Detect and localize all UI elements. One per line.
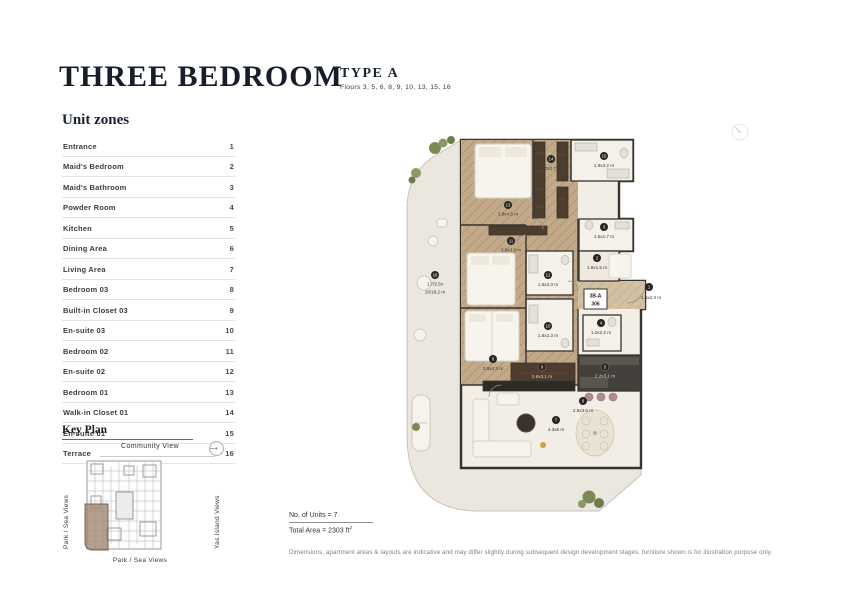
zone-label: Entrance — [63, 142, 97, 151]
list-item: Powder Room4 — [62, 198, 235, 219]
svg-text:13: 13 — [506, 203, 511, 208]
key-plan-unit-highlight — [85, 504, 108, 550]
floor-plan: 3B-A 306 1 1.6x2.3 m 2 1.9x1.5 m 3 1.5x1… — [393, 123, 693, 518]
svg-text:1.5x1.7 m: 1.5x1.7 m — [594, 234, 614, 239]
zone-label: Bedroom 02 — [63, 347, 108, 356]
zone-label: Maid's Bathroom — [63, 183, 127, 192]
list-item: En-suite 0212 — [62, 362, 235, 383]
svg-text:3.5x4.3 m: 3.5x4.3 m — [483, 366, 503, 371]
svg-text:10/18.2 m: 10/18.2 m — [425, 290, 446, 295]
list-item: Bedroom 038 — [62, 280, 235, 301]
zone-number: 15 — [225, 429, 234, 438]
svg-text:11: 11 — [509, 239, 514, 244]
zone-label: Kitchen — [63, 224, 92, 233]
area-superscript: 2 — [350, 525, 353, 530]
units-count: No. of Units = 7 — [289, 512, 373, 519]
zone-number: 7 — [230, 265, 234, 274]
svg-text:1.9x1.5 m: 1.9x1.5 m — [587, 265, 607, 270]
zone-number: 3 — [230, 183, 234, 192]
list-item: En-suite 0310 — [62, 321, 235, 342]
zone-number: 5 — [230, 224, 234, 233]
svg-text:16: 16 — [433, 273, 438, 278]
key-plan-heading: Key Plan — [62, 424, 107, 436]
unit-code-box: 3B-A 306 — [584, 289, 607, 309]
unit-number: 306 — [591, 302, 600, 308]
zone-number: 12 — [225, 367, 234, 376]
zone-label: Terrace — [63, 449, 91, 458]
north-compass-icon — [729, 121, 751, 143]
key-plan-right-label: Yas Island Views — [214, 495, 221, 549]
zone-number: 6 — [230, 244, 234, 253]
key-plan-left-label: Park / Sea Views — [63, 495, 70, 549]
divider — [289, 522, 373, 523]
zone-label: Dining Area — [63, 244, 107, 253]
zone-number: 2 — [230, 162, 234, 171]
zone-label: Living Area — [63, 265, 106, 274]
list-item: Living Area7 — [62, 259, 235, 280]
zone-number: 16 — [225, 449, 234, 458]
unit-code: 3B-A — [590, 294, 602, 300]
list-item: Built-in Closet 039 — [62, 300, 235, 321]
svg-text:1.9x3.2 m: 1.9x3.2 m — [594, 163, 614, 168]
divider — [100, 456, 215, 457]
svg-text:3.9x4.5 m: 3.9x4.5 m — [498, 212, 518, 217]
svg-text:1.2x2.2 m: 1.2x2.2 m — [591, 330, 611, 335]
list-item: Maid's Bathroom3 — [62, 177, 235, 198]
svg-text:15: 15 — [602, 154, 607, 159]
zone-number: 4 — [230, 203, 234, 212]
key-plan-tower-map — [82, 458, 168, 556]
key-plan-bottom-label: Park / Sea Views — [80, 557, 200, 564]
divider — [62, 439, 193, 440]
svg-text:3.5x3.9 m: 3.5x3.9 m — [501, 248, 521, 253]
total-area: Total Area = 2303 ft2 — [289, 525, 373, 534]
footer-stats: No. of Units = 7 Total Area = 2303 ft2 — [289, 512, 373, 534]
zone-label: Powder Room — [63, 203, 116, 212]
zone-number: 13 — [225, 388, 234, 397]
zone-number: 10 — [225, 326, 234, 335]
svg-text:1.7/2.5x: 1.7/2.5x — [427, 282, 444, 287]
zone-label: Bedroom 01 — [63, 388, 108, 397]
list-item: Dining Area6 — [62, 239, 235, 260]
svg-text:1.6x2.3 m: 1.6x2.3 m — [641, 295, 661, 300]
zone-label: Walk-in Closet 01 — [63, 408, 128, 417]
svg-text:4.3x6 m: 4.3x6 m — [548, 427, 565, 432]
svg-text:2.2x3.1 m: 2.2x3.1 m — [595, 374, 615, 379]
list-item: Bedroom 0113 — [62, 382, 235, 403]
disclaimer-text: Dimensions, apartment areas & layouts ar… — [289, 549, 794, 556]
unit-zones-heading: Unit zones — [62, 112, 129, 129]
key-plan-compass-icon — [208, 440, 225, 457]
svg-text:1.6x2.3 m: 1.6x2.3 m — [538, 333, 558, 338]
list-item: Walk-in Closet 0114 — [62, 403, 235, 424]
zone-label: Bedroom 03 — [63, 285, 108, 294]
zone-label: En-suite 03 — [63, 326, 105, 335]
unit-type-label: TYPE A — [340, 66, 399, 82]
page-title: THREE BEDROOM — [59, 60, 343, 94]
svg-text:1.7x2.7 m: 1.7x2.7 m — [541, 166, 561, 171]
zone-number: 14 — [225, 408, 234, 417]
list-item: Kitchen5 — [62, 218, 235, 239]
list-item: Maid's Bedroom2 — [62, 157, 235, 178]
zone-label: Built-in Closet 03 — [63, 306, 128, 315]
unit-zones-list: Entrance1 Maid's Bedroom2 Maid's Bathroo… — [62, 136, 235, 464]
key-plan-top-label: Community View — [80, 443, 220, 450]
svg-text:10: 10 — [546, 324, 551, 329]
list-item: Entrance1 — [62, 136, 235, 157]
zone-number: 8 — [230, 285, 234, 294]
zone-number: 11 — [226, 347, 234, 356]
list-item: Bedroom 0211 — [62, 341, 235, 362]
svg-text:2.5x3.5 m: 2.5x3.5 m — [573, 408, 593, 413]
zone-number: 9 — [230, 306, 234, 315]
zone-label: En-suite 02 — [63, 367, 105, 376]
svg-text:1.6x2.3 m: 1.6x2.3 m — [538, 282, 558, 287]
dining-table — [576, 410, 614, 456]
svg-text:14: 14 — [549, 157, 554, 162]
svg-text:12: 12 — [546, 273, 551, 278]
zone-number: 1 — [230, 142, 234, 151]
floors-list: Floors 3, 5, 6, 8, 9, 10, 13, 15, 16 — [340, 84, 451, 91]
brochure-page: THREE BEDROOM TYPE A Floors 3, 5, 6, 8, … — [0, 0, 848, 600]
zone-label: Maid's Bedroom — [63, 162, 124, 171]
svg-text:0.6x3.1 m: 0.6x3.1 m — [532, 374, 552, 379]
